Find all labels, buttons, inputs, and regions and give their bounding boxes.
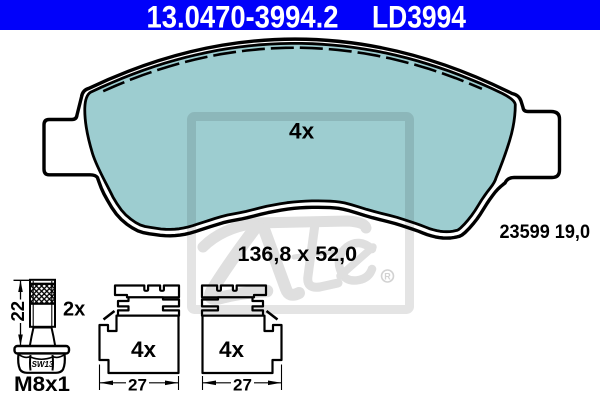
svg-text:2x: 2x <box>63 299 85 321</box>
svg-text:27: 27 <box>233 375 252 394</box>
svg-text:SW13: SW13 <box>32 360 54 369</box>
svg-text:22: 22 <box>7 301 28 322</box>
svg-text:4x: 4x <box>131 337 157 362</box>
svg-text:LD3994: LD3994 <box>372 0 466 34</box>
svg-text:136,8 x 52,0: 136,8 x 52,0 <box>238 242 358 266</box>
svg-text:23599 19,0: 23599 19,0 <box>500 222 591 243</box>
svg-text:13.0470-3994.2: 13.0470-3994.2 <box>147 0 339 34</box>
svg-text:M8x1: M8x1 <box>14 372 70 396</box>
svg-text:27: 27 <box>128 375 147 394</box>
svg-text:4x: 4x <box>289 119 315 144</box>
svg-text:4x: 4x <box>219 337 245 362</box>
svg-text:R: R <box>384 272 391 282</box>
